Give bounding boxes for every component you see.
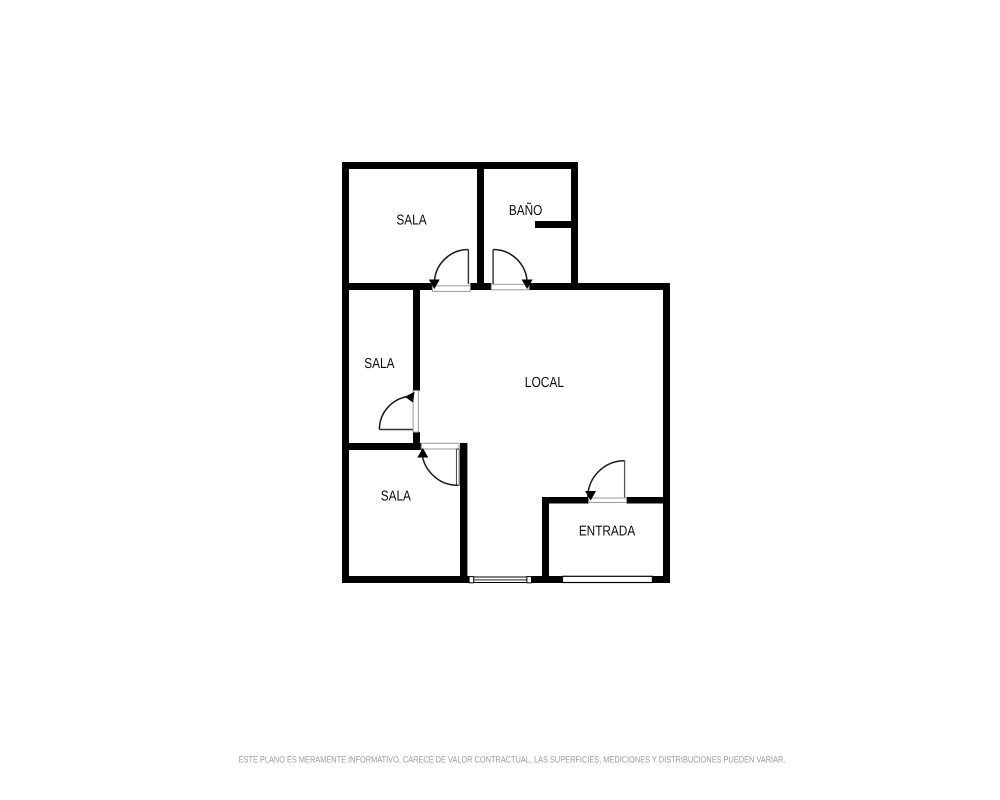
svg-text:ENTRADA: ENTRADA: [579, 523, 636, 539]
svg-text:BAÑO: BAÑO: [509, 202, 542, 219]
svg-text:LOCAL: LOCAL: [525, 375, 564, 391]
svg-text:SALA: SALA: [364, 356, 395, 372]
svg-text:SALA: SALA: [396, 212, 427, 228]
svg-text:ESTE PLANO ES MERAMENTE INFORM: ESTE PLANO ES MERAMENTE INFORMATIVO, CAR…: [239, 754, 786, 764]
svg-text:SALA: SALA: [381, 488, 412, 504]
